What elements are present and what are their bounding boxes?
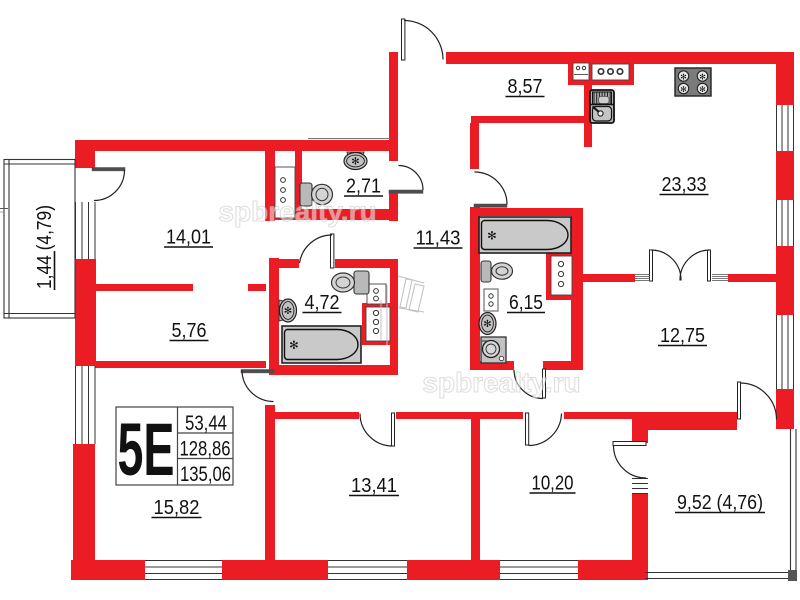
svg-text:spbrealty.ru: spbrealty.ru <box>218 196 376 227</box>
svg-text:1,44 (4,79): 1,44 (4,79) <box>34 205 56 289</box>
svg-text:✻: ✻ <box>680 73 687 82</box>
svg-text:11,43: 11,43 <box>416 228 461 250</box>
svg-text:6,15: 6,15 <box>509 292 543 314</box>
svg-text:14,01: 14,01 <box>166 227 211 249</box>
svg-text:✻: ✻ <box>699 85 706 94</box>
svg-text:9,52 (4,76): 9,52 (4,76) <box>677 492 763 514</box>
svg-text:2,71: 2,71 <box>346 176 381 198</box>
svg-text:23,33: 23,33 <box>662 174 707 196</box>
svg-text:128,86: 128,86 <box>180 438 231 461</box>
svg-text:12,75: 12,75 <box>660 325 705 347</box>
svg-text:✻: ✻ <box>680 85 687 94</box>
svg-text:✻: ✻ <box>483 319 491 330</box>
svg-text:✻: ✻ <box>487 231 497 243</box>
svg-text:5E: 5E <box>118 408 175 491</box>
svg-text:13,41: 13,41 <box>351 475 397 497</box>
svg-text:5,76: 5,76 <box>172 320 207 342</box>
svg-text:53,44: 53,44 <box>185 412 227 435</box>
svg-text:8,57: 8,57 <box>508 76 543 98</box>
svg-text:✻: ✻ <box>699 73 706 82</box>
svg-text:135,06: 135,06 <box>180 463 231 486</box>
svg-text:✻: ✻ <box>284 306 292 317</box>
svg-text:✻: ✻ <box>351 157 359 168</box>
svg-text:15,82: 15,82 <box>154 497 200 519</box>
svg-text:4,72: 4,72 <box>305 292 340 314</box>
svg-text:spbrealty.ru: spbrealty.ru <box>422 367 580 398</box>
svg-text:✻: ✻ <box>289 340 299 352</box>
svg-text:10,20: 10,20 <box>532 473 574 495</box>
